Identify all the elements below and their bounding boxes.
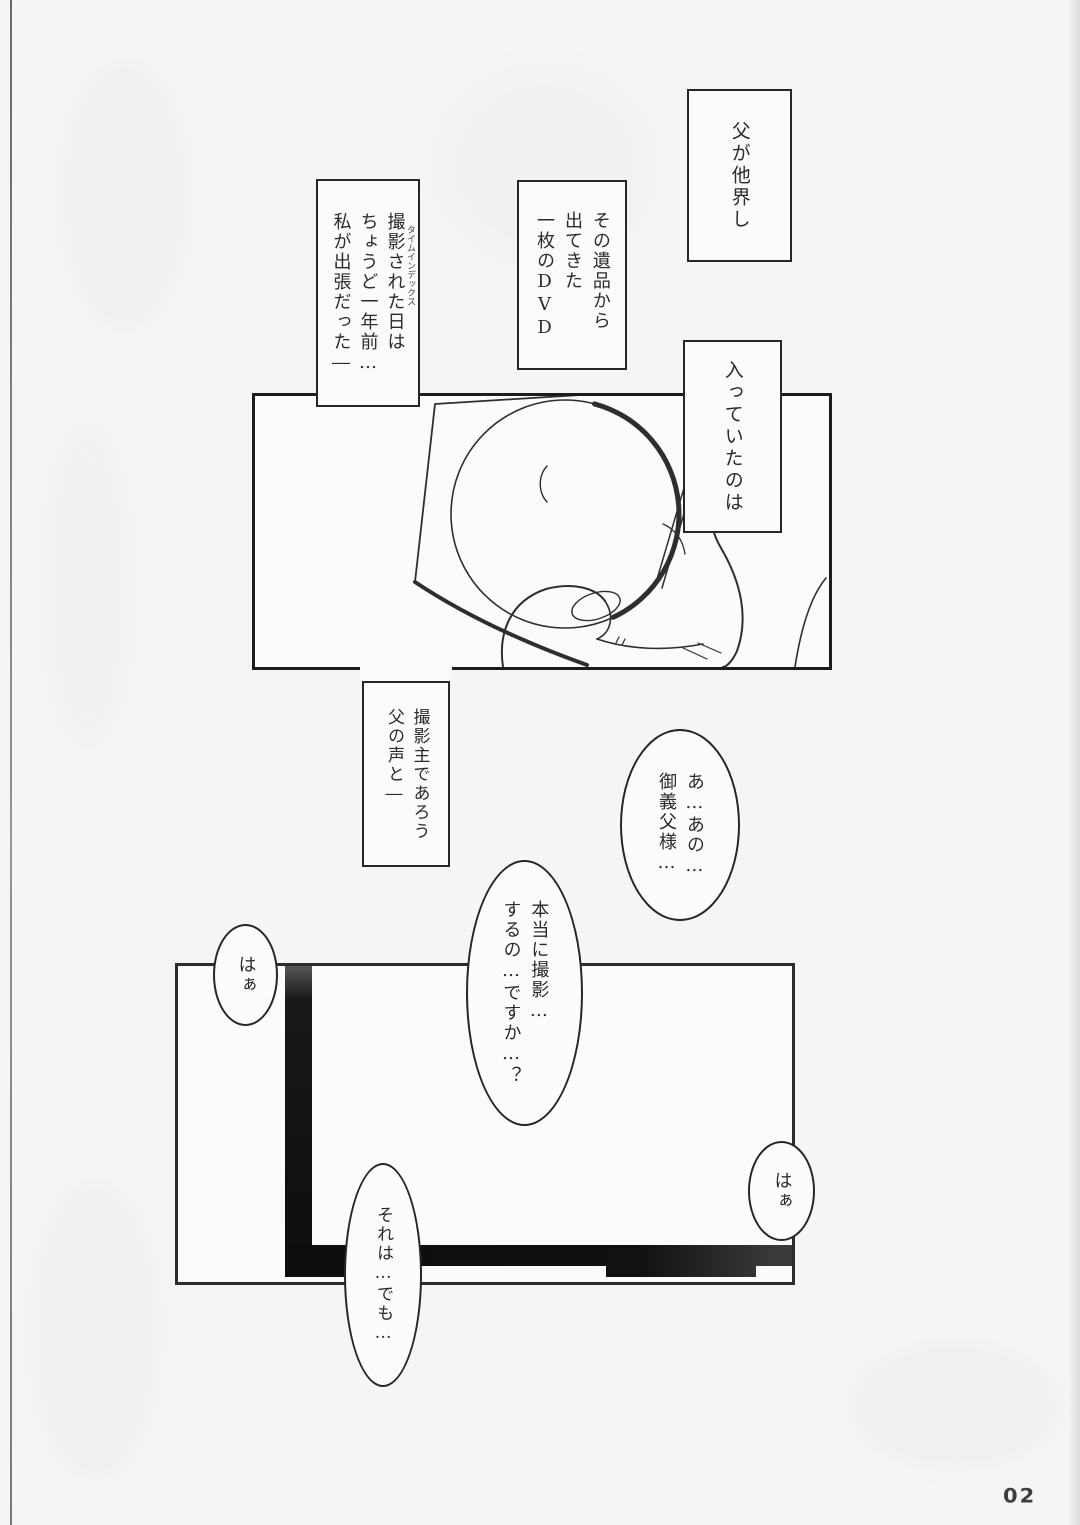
caption-text: 父が他界し (724, 121, 754, 231)
caption-text: 撮影された日はちょうど一年前…私が出張だった― (328, 212, 409, 375)
text-column: 本当に撮影… (525, 900, 553, 1086)
caption-box-2: その遺品から出てきた一枚のDVD (517, 180, 627, 370)
furigana-time-index: タイムインデックス (405, 225, 414, 306)
text-column: 入っていたのは (717, 360, 747, 514)
scan-smudge (30, 1180, 160, 1480)
page-number: 02 (1003, 1485, 1036, 1508)
bubble-text: それは…でも… (370, 1206, 396, 1345)
wrist-line (795, 578, 826, 667)
manga-page: 父が他界し その遺品から出てきた一枚のDVD 撮影された日はちょうど一年前…私が… (0, 0, 1080, 1525)
frame-highlight-strip (756, 1266, 792, 1277)
text-column: 父が他界し (724, 121, 754, 231)
caption-text: 撮影主であろう父の声と― (381, 708, 432, 841)
scan-edge-line (10, 0, 12, 1525)
speech-bubble-2: 本当に撮影…するの…ですか…？ (466, 860, 583, 1126)
text-column: 撮影主であろう (406, 708, 432, 841)
scan-smudge (850, 1340, 1060, 1470)
border-gap-patch (360, 664, 452, 681)
caption-box-1: 父が他界し (687, 89, 792, 262)
bubble-text: 本当に撮影…するの…ですか…？ (497, 900, 553, 1086)
thumb-outline (502, 586, 605, 667)
bubble-text: はぁ (768, 1171, 796, 1211)
bubble-text: あ…あの…御義父様… (652, 772, 708, 878)
disc-center-hole (540, 466, 547, 502)
speech-bubble-3: はぁ (213, 924, 278, 1026)
caption-box-4: 入っていたのは (683, 340, 782, 533)
text-column: はぁ (768, 1171, 796, 1211)
text-column: 父の声と― (381, 708, 407, 841)
caption-text: 入っていたのは (717, 360, 747, 514)
thumb-nail (568, 586, 624, 626)
caption-text: その遺品から出てきた一枚のDVD (530, 211, 614, 340)
scan-edge-shadow (1068, 0, 1080, 1525)
scan-smudge (60, 60, 190, 330)
text-column: 出てきた (558, 211, 586, 340)
knuckle-line (597, 639, 703, 648)
text-column: はぁ (232, 955, 260, 995)
bubble-text: はぁ (232, 955, 260, 995)
disc-edge-thick-arc (595, 404, 679, 617)
caption-box-5: 撮影主であろう父の声と― (362, 681, 450, 867)
text-column: その遺品から (586, 211, 614, 340)
frame-highlight-strip (420, 1266, 606, 1277)
text-column: 私が出張だった― (328, 212, 355, 375)
text-column: 一枚のDVD (530, 211, 558, 340)
dark-frame-vertical-bar (285, 966, 312, 1260)
caption-box-3: 撮影された日はちょうど一年前…私が出張だった― タイムインデックス (316, 179, 420, 407)
text-column: ちょうど一年前… (355, 212, 382, 375)
text-column: 御義父様… (652, 772, 680, 878)
speech-bubble-4: はぁ (748, 1141, 815, 1241)
speech-bubble-5: それは…でも… (344, 1163, 422, 1387)
speech-bubble-1: あ…あの…御義父様… (620, 729, 740, 921)
text-column: それは…でも… (370, 1206, 396, 1345)
scan-smudge (40, 420, 135, 750)
text-column: するの…ですか…？ (497, 900, 525, 1086)
text-column: あ…あの… (680, 772, 708, 878)
